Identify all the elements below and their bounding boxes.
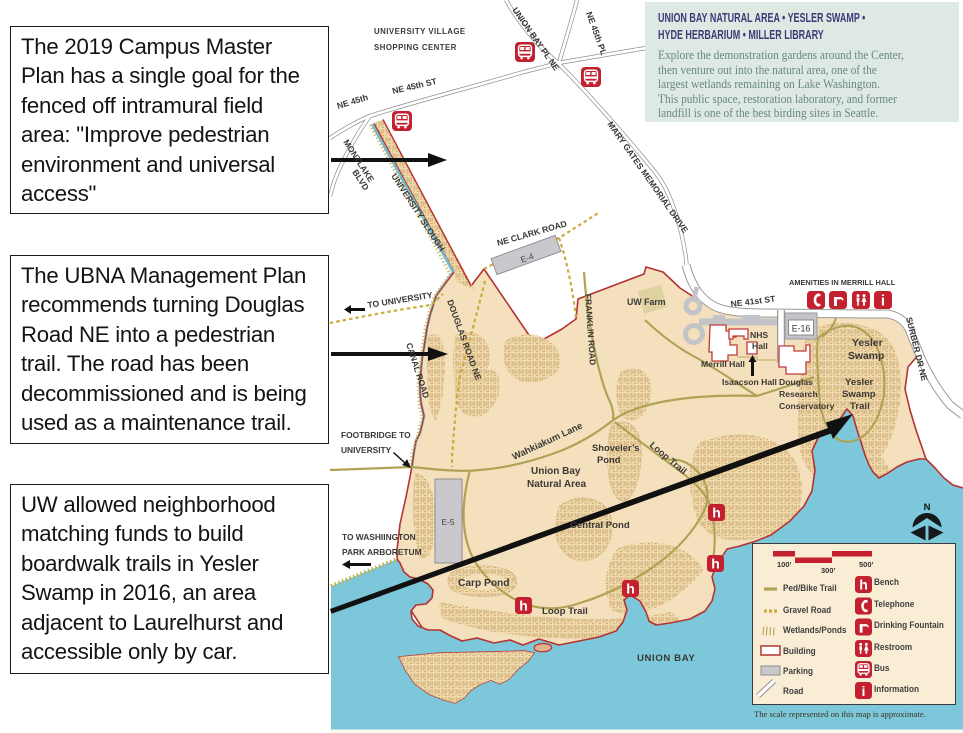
svg-text:Conservatory: Conservatory (779, 401, 835, 411)
svg-text:Shoveler’s: Shoveler’s (592, 442, 639, 453)
svg-text:Merrill Hall: Merrill Hall (701, 359, 745, 369)
svg-text:UNION BAY: UNION BAY (637, 653, 695, 664)
svg-text:UNIVERSITY SLOUGH: UNIVERSITY SLOUGH (389, 172, 447, 253)
svg-text:Union Bay: Union Bay (531, 466, 581, 477)
svg-text:Isaacson Hall: Isaacson Hall (722, 377, 777, 387)
svg-text:Hall: Hall (752, 341, 768, 351)
svg-text:Loop Trail: Loop Trail (542, 606, 588, 617)
svg-text:N: N (924, 502, 931, 513)
svg-text:E-16: E-16 (792, 324, 811, 334)
svg-text:Carp Pond: Carp Pond (458, 578, 510, 589)
svg-text:NE 45th PL: NE 45th PL (584, 10, 609, 56)
svg-text:Yesler: Yesler (852, 338, 883, 349)
svg-text:UNIVERSITY: UNIVERSITY (341, 445, 392, 455)
svg-text:FOOTBRIDGE TO: FOOTBRIDGE TO (341, 430, 411, 440)
svg-text:NE 45th: NE 45th (336, 92, 370, 111)
svg-text:NE 45th ST: NE 45th ST (391, 76, 438, 96)
svg-text:NHS: NHS (750, 330, 768, 340)
svg-text:Swamp: Swamp (842, 389, 876, 400)
svg-text:100’: 100’ (777, 560, 792, 569)
svg-text:Natural Area: Natural Area (527, 479, 587, 490)
svg-text:Research: Research (779, 389, 818, 399)
svg-text:UNIVERSITY VILLAGE: UNIVERSITY VILLAGE (374, 27, 466, 36)
svg-text:TO UNIVERSITY: TO UNIVERSITY (367, 290, 434, 310)
svg-text:Pond: Pond (597, 454, 621, 465)
svg-text:UW Farm: UW Farm (627, 297, 666, 307)
svg-text:Central Pond: Central Pond (570, 520, 630, 531)
svg-text:Trail: Trail (850, 401, 870, 412)
svg-text:300’: 300’ (821, 566, 836, 575)
svg-text:500’: 500’ (859, 560, 874, 569)
svg-text:MARY GATES MEMORIAL DRIVE: MARY GATES MEMORIAL DRIVE (605, 119, 690, 235)
svg-text:AMENITIES IN MERRILL HALL: AMENITIES IN MERRILL HALL (789, 278, 896, 287)
svg-text:NE 41st ST: NE 41st ST (730, 293, 777, 308)
svg-text:Swamp: Swamp (848, 351, 884, 362)
svg-text:Yesler: Yesler (845, 377, 874, 388)
svg-text:SHOPPING CENTER: SHOPPING CENTER (374, 43, 457, 52)
svg-text:UNION BAY PL NE: UNION BAY PL NE (510, 5, 561, 72)
svg-text:E-5: E-5 (441, 517, 455, 527)
svg-text:PARK ARBORETUM: PARK ARBORETUM (342, 547, 422, 557)
svg-text:TO WASHIINGTON: TO WASHIINGTON (342, 532, 416, 542)
svg-text:Douglas: Douglas (779, 377, 813, 387)
